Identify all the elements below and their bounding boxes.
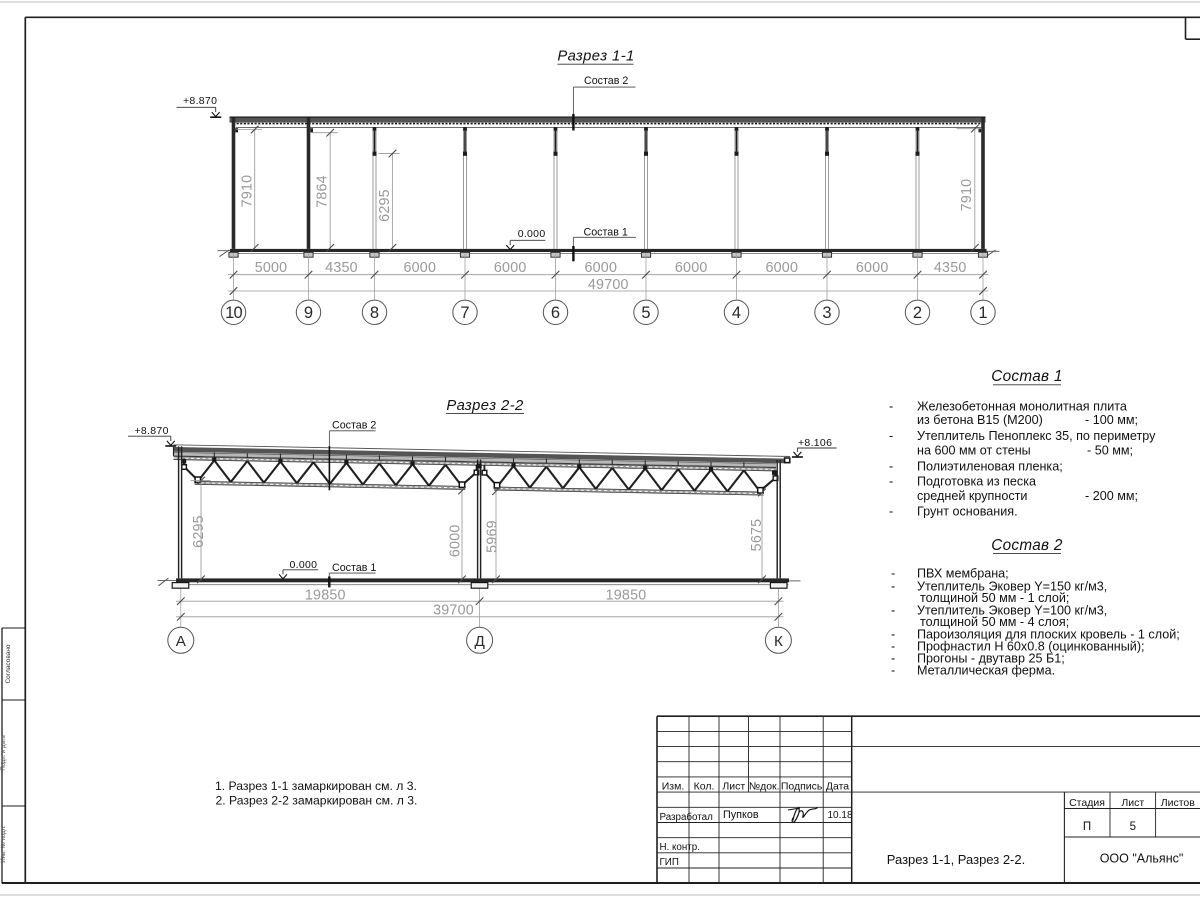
svg-text:7864: 7864 <box>314 175 330 208</box>
svg-text:Кол.: Кол. <box>694 781 715 793</box>
svg-text:2. Разрез 2-2 замаркирован см.: 2. Разрез 2-2 замаркирован см. л 3. <box>216 794 418 808</box>
svg-text:Согласовано: Согласовано <box>5 644 12 683</box>
svg-text:5969: 5969 <box>485 520 501 553</box>
svg-text:0.000: 0.000 <box>290 559 318 571</box>
svg-text:1: 1 <box>978 304 987 322</box>
svg-text:0.000: 0.000 <box>518 228 546 240</box>
svg-text:6000: 6000 <box>856 260 889 276</box>
svg-text:2: 2 <box>913 304 922 322</box>
svg-text:Состав 2: Состав 2 <box>332 420 376 432</box>
svg-text:-: - <box>889 429 893 443</box>
svg-text:10.18: 10.18 <box>828 810 853 821</box>
svg-text:Утеплитель Пеноплекс 35, по пе: Утеплитель Пеноплекс 35, по периметру <box>917 429 1156 443</box>
svg-text:Дата: Дата <box>826 781 849 793</box>
svg-text:6295: 6295 <box>377 189 393 222</box>
svg-text:№док.: №док. <box>749 781 780 793</box>
svg-text:- 200 мм;: - 200 мм; <box>1085 489 1138 503</box>
svg-text:П: П <box>1083 821 1091 833</box>
svg-text:6000: 6000 <box>403 260 436 276</box>
svg-text:7910: 7910 <box>959 179 975 212</box>
svg-text:Состав 1: Состав 1 <box>332 562 376 574</box>
svg-text:+8.870: +8.870 <box>183 95 217 107</box>
svg-text:Изм.: Изм. <box>662 781 685 793</box>
svg-text:5675: 5675 <box>749 519 765 552</box>
svg-text:5: 5 <box>1130 821 1136 833</box>
svg-text:9: 9 <box>304 304 313 322</box>
svg-text:10: 10 <box>225 304 242 322</box>
svg-text:39700: 39700 <box>433 603 474 619</box>
svg-text:Пупков: Пупков <box>723 809 759 821</box>
svg-text:Состав 2: Состав 2 <box>991 537 1063 554</box>
svg-text:6000: 6000 <box>494 260 527 276</box>
svg-text:Листов: Листов <box>1161 797 1196 809</box>
svg-text:Разрез 1-1: Разрез 1-1 <box>557 49 634 65</box>
svg-text:-: - <box>889 460 893 474</box>
svg-text:5000: 5000 <box>255 260 288 276</box>
svg-text:5: 5 <box>641 304 650 322</box>
svg-text:-: - <box>891 579 895 593</box>
svg-text:Разрез 1-1, Разрез 2-2.: Разрез 1-1, Разрез 2-2. <box>887 852 1025 867</box>
svg-text:-: - <box>891 603 895 617</box>
svg-text:- 100 мм;: - 100 мм; <box>1085 413 1138 427</box>
svg-text:Железобетонная монолитная пли: Железобетонная монолитная плита <box>917 400 1127 414</box>
svg-text:Лист: Лист <box>1121 797 1144 809</box>
svg-text:19850: 19850 <box>305 587 346 603</box>
svg-text:6295: 6295 <box>191 515 207 548</box>
svg-text:7910: 7910 <box>239 175 255 208</box>
svg-text:6000: 6000 <box>584 260 617 276</box>
svg-text:Д: Д <box>474 633 484 650</box>
svg-text:Стадия: Стадия <box>1069 797 1105 809</box>
svg-text:49700: 49700 <box>588 277 629 293</box>
svg-text:Лист: Лист <box>722 781 745 793</box>
svg-text:Состав 2: Состав 2 <box>584 75 628 87</box>
svg-text:6: 6 <box>551 304 560 322</box>
svg-text:Металлическая ферма.: Металлическая ферма. <box>917 663 1055 677</box>
svg-text:ООО "Альянс": ООО "Альянс" <box>1100 851 1184 865</box>
svg-text:средней крупности: средней крупности <box>917 489 1027 503</box>
svg-text:7: 7 <box>460 304 469 322</box>
svg-text:Состав 1: Состав 1 <box>991 368 1062 385</box>
svg-text:Подпись: Подпись <box>781 781 823 793</box>
svg-text:-: - <box>891 663 895 677</box>
svg-text:Состав 1: Состав 1 <box>584 227 628 239</box>
svg-text:Разрез 2-2: Разрез 2-2 <box>446 398 524 414</box>
svg-text:19850: 19850 <box>606 587 647 603</box>
svg-text:4350: 4350 <box>934 260 967 276</box>
svg-text:ПВХ мембрана;: ПВХ мембрана; <box>917 566 1009 580</box>
svg-text:Инв. № подл.: Инв. № подл. <box>0 825 7 863</box>
svg-text:Подп. и дата: Подп. и дата <box>1 735 7 771</box>
svg-text:А: А <box>176 633 187 650</box>
svg-text:Полиэтиленовая пленка;: Полиэтиленовая пленка; <box>917 460 1063 474</box>
svg-text:6000: 6000 <box>448 524 464 557</box>
svg-text:Н. контр.: Н. контр. <box>660 842 700 853</box>
svg-text:4350: 4350 <box>325 260 358 276</box>
svg-text:4: 4 <box>732 304 741 322</box>
svg-text:-: - <box>891 566 895 580</box>
svg-text:6000: 6000 <box>765 260 798 276</box>
svg-text:Грунт основания.: Грунт основания. <box>917 505 1018 519</box>
svg-text:К: К <box>774 633 783 650</box>
svg-text:из бетона В15 (М200): из бетона В15 (М200) <box>917 413 1043 427</box>
svg-text:3: 3 <box>822 304 831 322</box>
svg-text:+8.106: +8.106 <box>798 437 832 449</box>
svg-text:на 600 мм от стены: на 600 мм от стены <box>917 444 1031 458</box>
svg-text:Разработал: Разработал <box>660 812 714 823</box>
svg-text:ГИП: ГИП <box>660 857 679 868</box>
svg-text:-: - <box>889 400 893 414</box>
svg-text:-: - <box>889 505 893 519</box>
svg-text:-: - <box>889 475 893 489</box>
svg-text:1. Разрез 1-1 замаркирован см.: 1. Разрез 1-1 замаркирован см. л 3. <box>215 779 417 793</box>
svg-text:Подготовка из песка: Подготовка из песка <box>917 475 1036 489</box>
svg-text:+8.870: +8.870 <box>135 425 169 437</box>
svg-text:6000: 6000 <box>675 260 708 276</box>
svg-text:- 50 мм;: - 50 мм; <box>1087 444 1133 458</box>
svg-text:8: 8 <box>370 304 379 322</box>
